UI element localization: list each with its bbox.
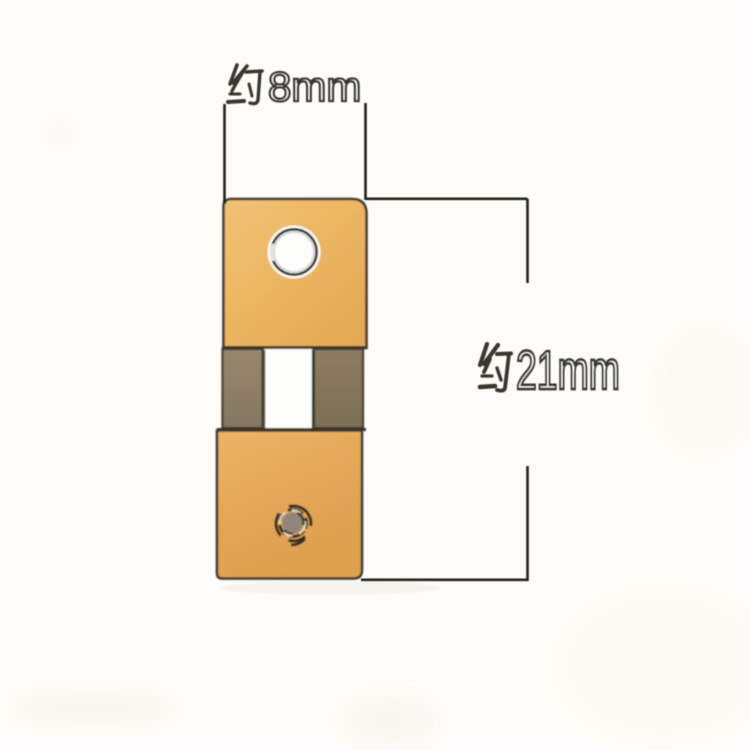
svg-text:8mm: 8mm bbox=[268, 63, 361, 110]
svg-text:21mm: 21mm bbox=[516, 339, 620, 401]
